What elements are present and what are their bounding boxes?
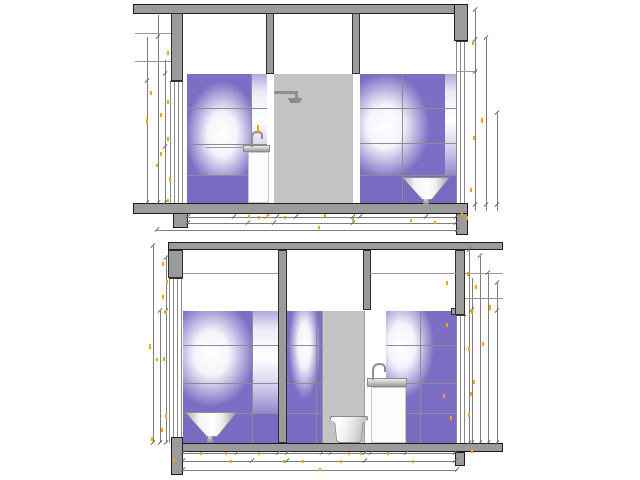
dimension-text-mark xyxy=(489,305,491,310)
dimension-tick xyxy=(455,227,460,232)
dimension-text-mark xyxy=(230,460,232,463)
wall-reference-line xyxy=(206,147,244,148)
dimension-text-mark xyxy=(162,295,164,299)
dimension-text-mark xyxy=(225,452,227,455)
dimension-text-mark xyxy=(248,215,250,218)
dimension-text-mark xyxy=(284,216,286,219)
dimension-text-mark xyxy=(151,437,153,441)
dimension-line xyxy=(165,60,166,203)
dimension-text-mark xyxy=(266,215,268,218)
dimension-text-mark xyxy=(360,452,362,455)
dimension-text-mark xyxy=(470,392,472,396)
wall-reference-line xyxy=(135,33,171,34)
dimension-text-mark xyxy=(149,344,151,349)
wall-reference-line xyxy=(465,298,503,299)
wall-reference-line xyxy=(465,273,503,274)
dimension-text-mark xyxy=(160,113,162,117)
dimension-tick xyxy=(453,450,458,455)
dimension-text-mark xyxy=(318,226,320,229)
dimension-text-mark xyxy=(434,221,436,224)
dimension-text-mark xyxy=(167,51,169,55)
dimension-text-mark xyxy=(412,460,414,463)
dimension-text-mark xyxy=(258,452,260,455)
dimension-text-mark xyxy=(156,164,158,167)
dimension-tick xyxy=(164,440,169,445)
dimension-line xyxy=(157,230,457,231)
dimension-text-mark xyxy=(302,460,304,463)
wall-reference-line xyxy=(370,273,456,274)
dimension-text-mark xyxy=(319,468,321,471)
dimension-text-mark xyxy=(352,218,354,221)
dimension-text-mark xyxy=(473,136,475,140)
dimension-tick xyxy=(486,440,491,445)
dimension-text-mark xyxy=(200,452,202,455)
dimension-text-mark xyxy=(283,460,285,463)
dimension-text-mark xyxy=(156,358,158,361)
dimension-text-mark xyxy=(166,280,168,284)
dimension-text-mark xyxy=(173,458,175,462)
dimension-tick xyxy=(453,458,458,463)
dimension-text-mark xyxy=(466,216,468,220)
dimension-tick xyxy=(478,440,483,445)
dimension-text-mark xyxy=(387,452,389,455)
dimension-tick xyxy=(158,440,163,445)
dimension-text-mark xyxy=(446,323,448,327)
dimension-line xyxy=(158,15,159,203)
dimension-text-mark xyxy=(450,416,452,420)
wall-reference-line xyxy=(135,61,171,62)
dimension-annotations-layer xyxy=(0,0,640,480)
dimension-line xyxy=(183,461,455,462)
dimension-text-mark xyxy=(340,460,342,463)
dimension-text-mark xyxy=(258,216,260,219)
dimension-line xyxy=(472,278,473,443)
dimension-text-mark xyxy=(472,41,474,45)
dimension-text-mark xyxy=(167,199,169,202)
dimension-tick xyxy=(145,200,150,205)
dimension-tick xyxy=(454,220,459,225)
dimension-tick xyxy=(455,467,460,472)
dimension-text-mark xyxy=(324,214,326,217)
dimension-text-mark xyxy=(446,281,448,285)
wall-reference-line xyxy=(183,273,278,274)
dimension-text-mark xyxy=(481,118,483,123)
dimension-text-mark xyxy=(162,262,164,266)
dimension-text-mark xyxy=(473,380,475,384)
dimension-text-mark xyxy=(471,310,473,314)
dimension-text-mark xyxy=(165,414,167,418)
dimension-text-mark xyxy=(461,212,463,216)
dimension-text-mark xyxy=(257,125,259,132)
dimension-line xyxy=(486,38,487,211)
dimension-text-mark xyxy=(467,272,469,276)
dimension-text-mark xyxy=(163,357,165,361)
dimension-text-mark xyxy=(482,342,484,346)
dimension-text-mark xyxy=(167,100,169,104)
dimension-text-mark xyxy=(475,285,477,289)
dimension-text-mark xyxy=(410,219,412,222)
dimension-line xyxy=(153,246,154,443)
dimension-tick xyxy=(156,200,161,205)
dimension-text-mark xyxy=(150,91,152,95)
dimension-text-mark xyxy=(167,137,169,141)
dimension-text-mark xyxy=(161,428,163,432)
dimension-text-mark xyxy=(146,119,148,124)
dimension-text-mark xyxy=(165,310,167,314)
cad-drawing-canvas[interactable] xyxy=(0,0,640,480)
dimension-tick xyxy=(495,440,500,445)
dimension-line xyxy=(475,10,476,211)
dimension-line xyxy=(186,217,456,218)
dimension-text-mark xyxy=(470,188,472,192)
dimension-text-mark xyxy=(471,449,473,453)
dimension-line xyxy=(186,223,456,224)
dimension-text-mark xyxy=(348,452,350,455)
dimension-text-mark xyxy=(169,177,171,181)
dimension-text-mark xyxy=(468,347,470,351)
dimension-text-mark xyxy=(160,152,162,156)
dimension-text-mark xyxy=(468,413,470,417)
dimension-text-mark xyxy=(443,394,445,398)
dimension-line xyxy=(480,256,481,443)
dimension-line xyxy=(160,311,161,443)
dimension-tick xyxy=(454,214,459,219)
dimension-line xyxy=(497,113,498,211)
